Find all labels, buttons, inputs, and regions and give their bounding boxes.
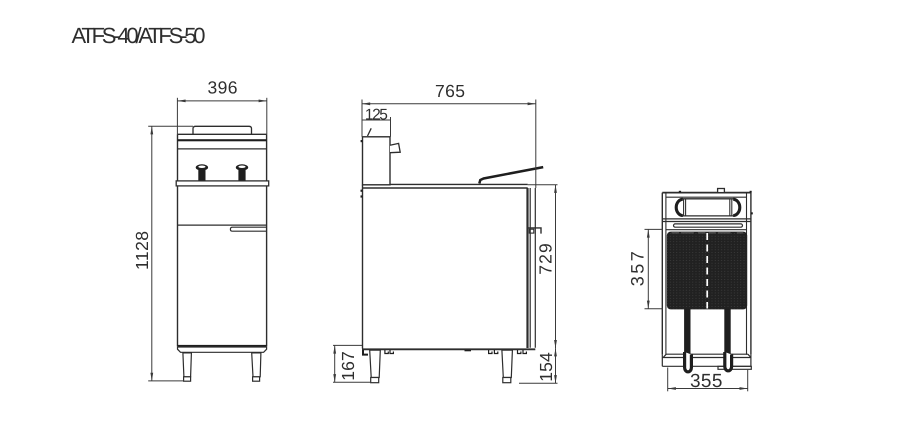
svg-text:154: 154: [536, 352, 556, 382]
svg-text:125: 125: [365, 106, 388, 123]
svg-text:ATFS-40/ATFS-50: ATFS-40/ATFS-50: [72, 23, 206, 48]
svg-text:729: 729: [536, 243, 556, 275]
svg-text:355: 355: [690, 371, 723, 392]
svg-text:357: 357: [627, 251, 647, 286]
svg-text:396: 396: [208, 78, 238, 98]
svg-text:167: 167: [338, 351, 358, 381]
svg-text:765: 765: [435, 81, 465, 101]
svg-text:1128: 1128: [132, 231, 152, 270]
